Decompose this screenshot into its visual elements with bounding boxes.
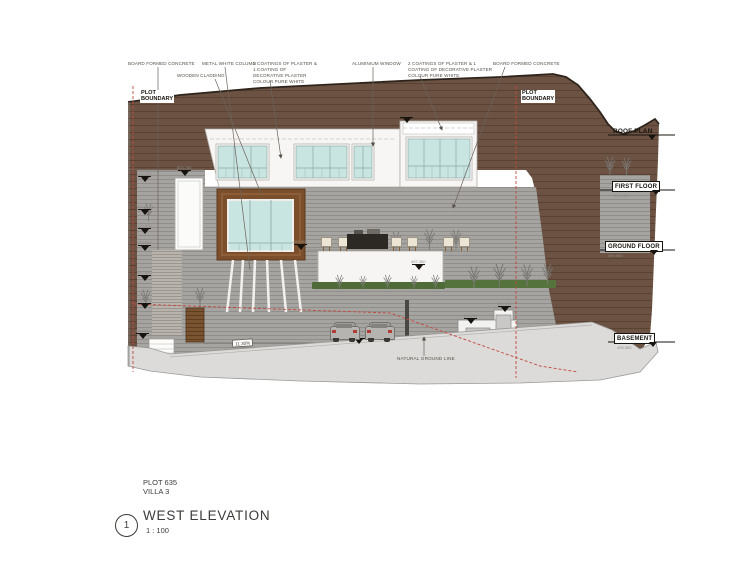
datum-triangle xyxy=(652,190,660,195)
terrace-chair xyxy=(459,237,469,250)
terrace-chair xyxy=(391,237,401,250)
view-scale: 1 : 100 xyxy=(146,526,169,535)
note-plaster-right: 2 COATINGS OF PLASTER & 1 COATING OF DEC… xyxy=(408,61,492,79)
timber-door xyxy=(186,308,204,342)
datum-triangle xyxy=(648,135,656,140)
view-number: 1 xyxy=(124,520,130,531)
datum-triangle xyxy=(650,250,658,255)
car xyxy=(365,322,393,342)
terrace-chair xyxy=(321,237,331,250)
plot-boundary-label-right: PLOT BOUNDARY xyxy=(521,90,555,103)
natural-ground-line-label: NATURAL GROUND LINE xyxy=(397,356,455,361)
plot-villa-label: PLOT 635 VILLA 3 xyxy=(143,478,177,497)
wooden-cladding-box xyxy=(217,189,305,260)
note-wooden-cladding: WOODEN CLADDING xyxy=(177,73,225,79)
view-title: WEST ELEVATION xyxy=(143,508,270,523)
note-plaster-left: 2 COATINGS OF PLASTER & 1 COATING OF DEC… xyxy=(253,61,317,85)
terrace-chair xyxy=(407,237,417,250)
ramp-slope-label: 11.30% xyxy=(232,338,254,347)
concrete-wall xyxy=(175,178,203,250)
stair-band xyxy=(152,250,182,335)
datum-triangle xyxy=(649,342,657,347)
elevation-sheet: BOARD FORMED CONCRETE WOODEN CLADDING ME… xyxy=(0,0,750,587)
first-floor-volume-right xyxy=(400,121,477,187)
note-board-formed-concrete-left: BOARD FORMED CONCRETE xyxy=(128,61,195,67)
view-number-circle: 1 xyxy=(115,514,138,537)
bbq-counter xyxy=(347,234,388,249)
note-aluminium-window: ALUMINIUM WINDOW xyxy=(352,61,401,67)
west-elevation-drawing xyxy=(0,0,750,587)
plot-boundary-label-left: PLOT BOUNDARY xyxy=(140,90,174,103)
terrace-chair xyxy=(443,237,453,250)
car xyxy=(330,322,358,342)
note-board-formed-concrete-right: BOARD FORMED CONCRETE xyxy=(493,61,560,67)
note-metal-white-column: METAL WHITE COLUMN xyxy=(202,61,256,67)
